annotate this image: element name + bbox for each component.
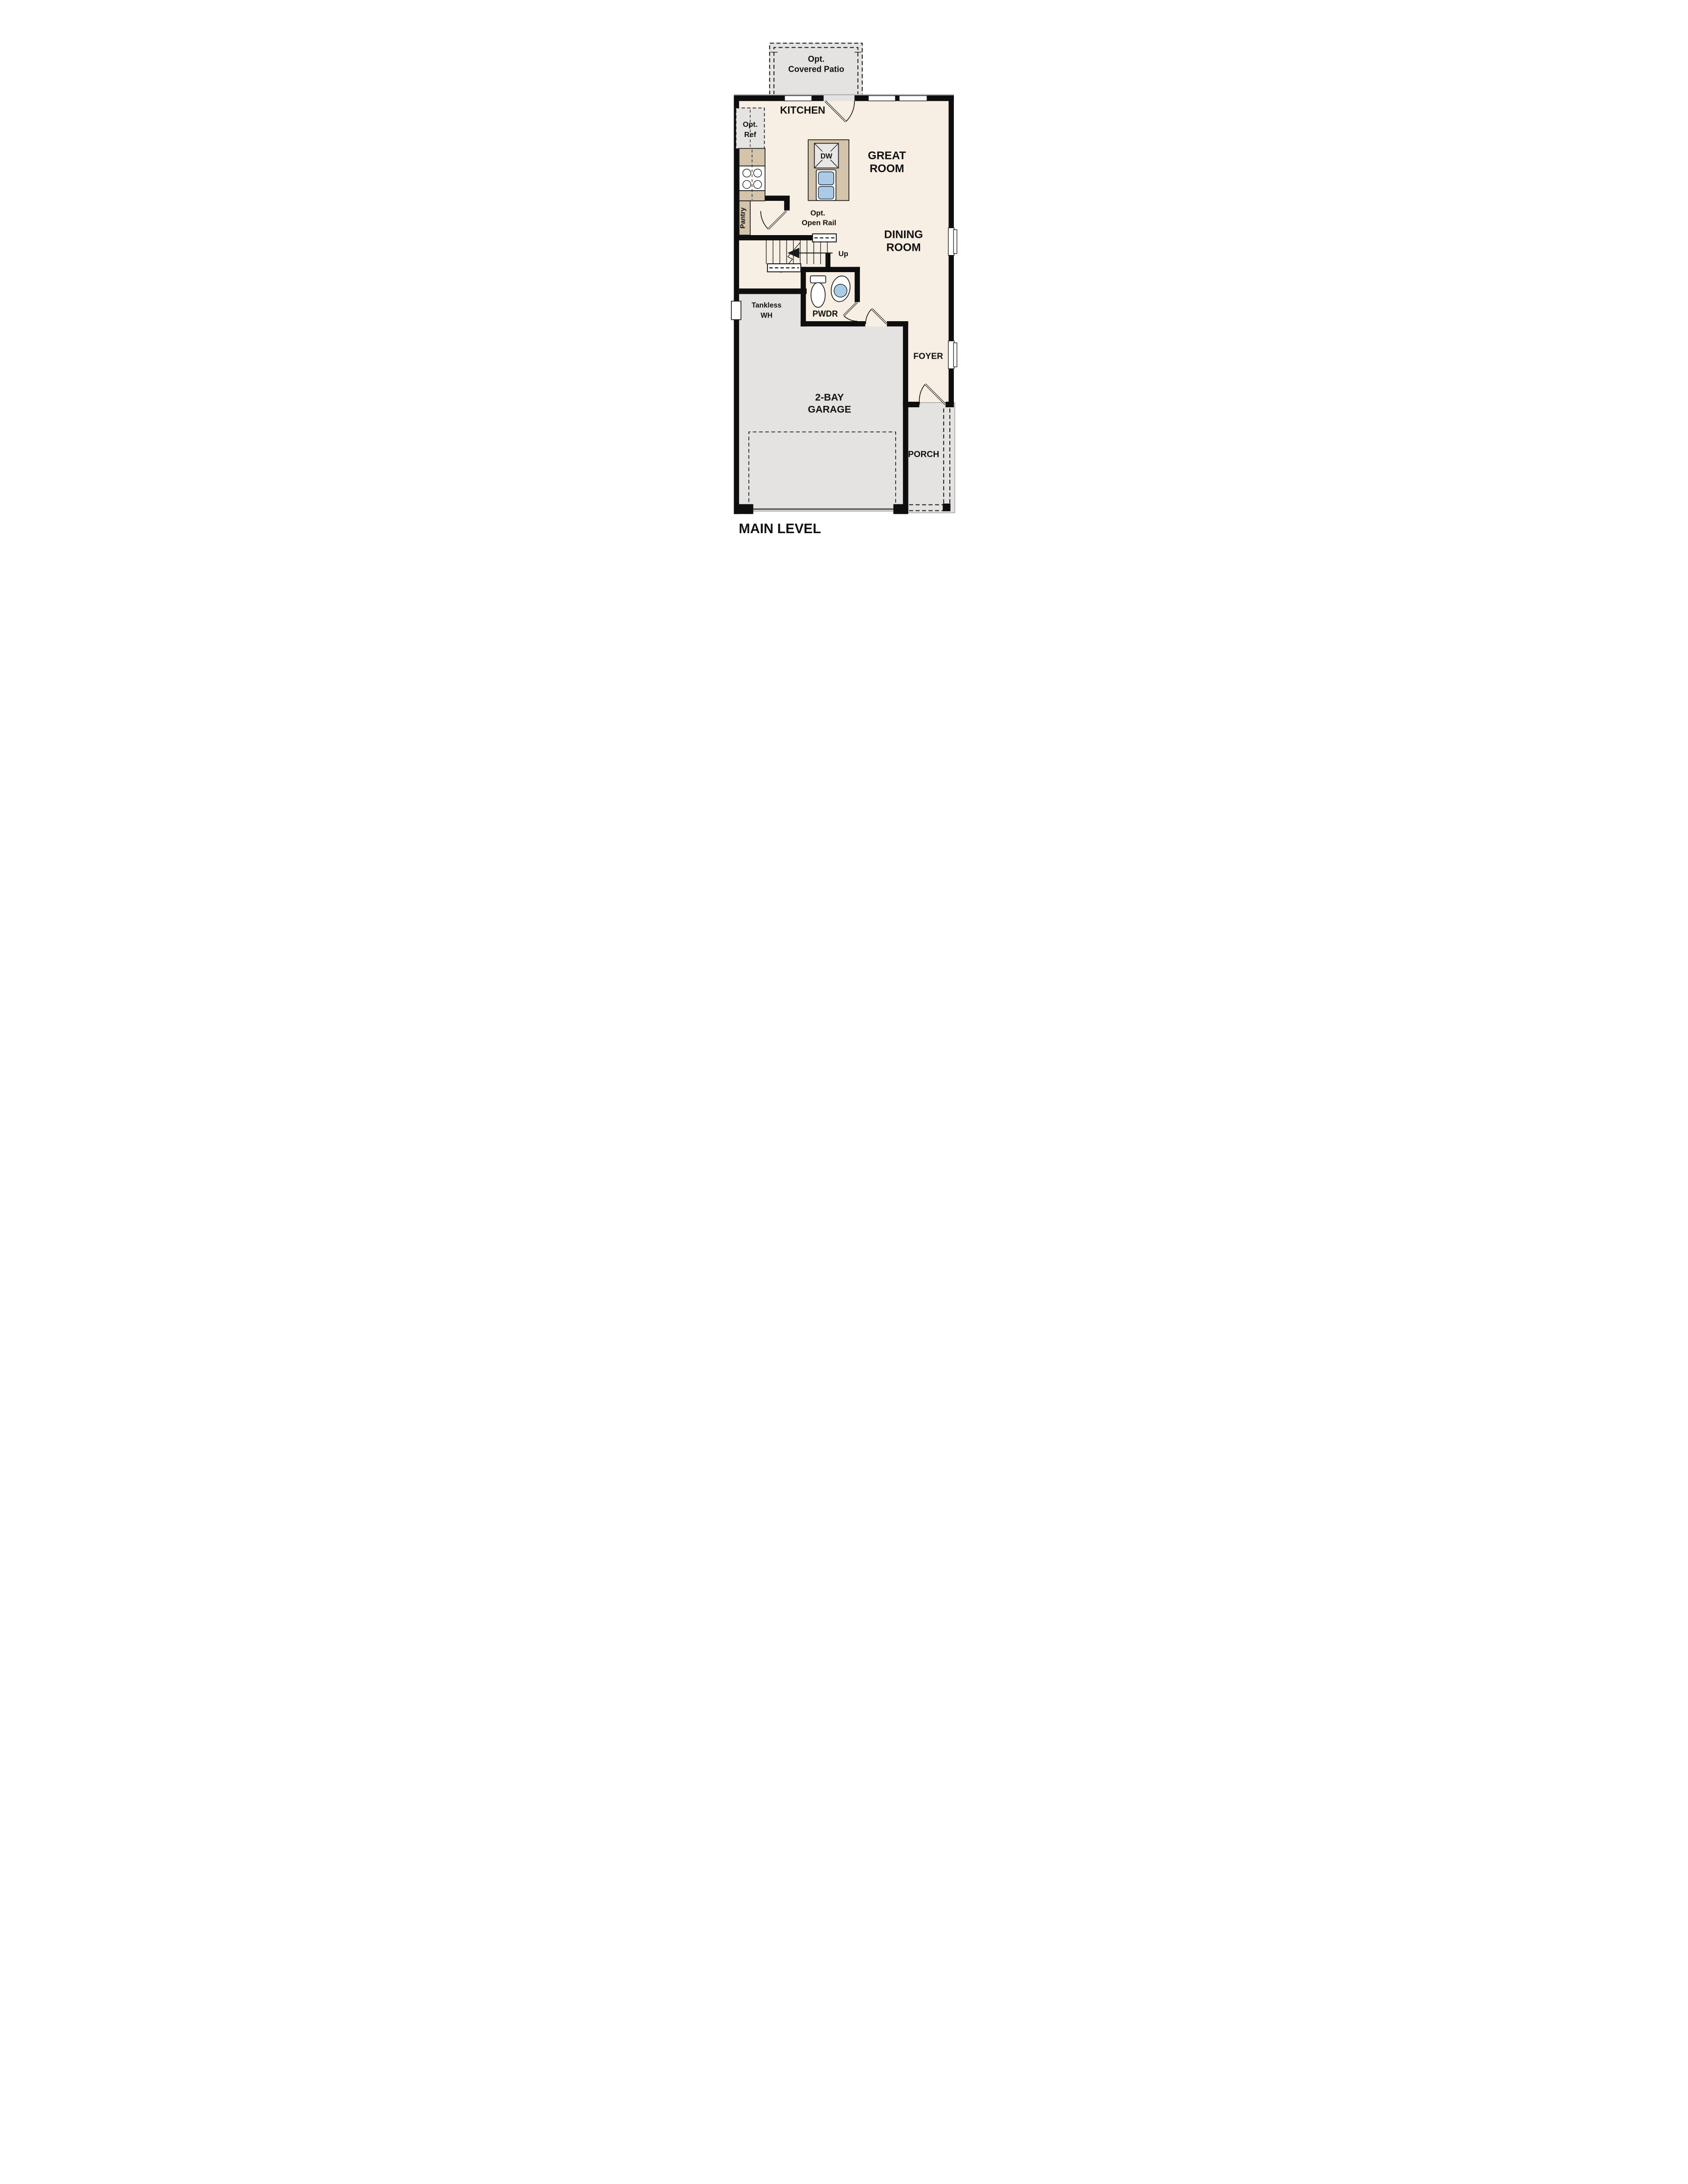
opt-ref-label-line2: Ref bbox=[744, 131, 756, 139]
stair-closet-stub bbox=[825, 253, 830, 268]
sink-basin-1 bbox=[818, 172, 834, 185]
kitchen-label: KITCHEN bbox=[780, 104, 825, 116]
kitchen-window bbox=[785, 96, 812, 101]
porch-post bbox=[942, 504, 950, 511]
top-wall-seg4 bbox=[895, 95, 899, 101]
great-room-label-line1: GREAT bbox=[868, 149, 906, 162]
porch-label: PORCH bbox=[908, 449, 939, 459]
foyer-window-sill bbox=[953, 343, 957, 367]
dining-room-label-line1: DINING bbox=[884, 229, 923, 241]
covered-patio: Opt. Covered Patio bbox=[769, 43, 863, 101]
front-wall-seg2 bbox=[945, 402, 953, 407]
patio-label-line1: Opt. bbox=[808, 54, 824, 63]
great-room-label-line2: ROOM bbox=[869, 162, 904, 175]
tankless-label-line2: WH bbox=[760, 312, 772, 320]
dining-window-sill bbox=[953, 230, 957, 253]
pwdr-label: PWDR bbox=[812, 309, 838, 318]
dining-room-label-line2: ROOM bbox=[886, 242, 921, 254]
garage-label-line2: GARAGE bbox=[808, 404, 851, 415]
garage-label-line1: 2-BAY bbox=[815, 392, 844, 403]
open-rail-label-line1: Opt. bbox=[810, 209, 825, 217]
garage-door-line bbox=[753, 509, 893, 510]
pwdr-right-wall bbox=[854, 267, 860, 302]
pwdr-left-wall bbox=[800, 267, 805, 327]
floor-plan-page: Opt. Covered Patio bbox=[563, 0, 1126, 728]
great-room-window-1 bbox=[868, 96, 895, 101]
tankless-label-line1: Tankless bbox=[751, 302, 781, 310]
pantry-label: Pantry bbox=[739, 207, 747, 228]
pantry-door-stub bbox=[784, 201, 790, 211]
patio-label-line2: Covered Patio bbox=[788, 64, 844, 74]
garage-door-line2 bbox=[753, 510, 893, 511]
dishwasher-label: DW bbox=[820, 153, 832, 161]
hall-bottom-wall-seg1 bbox=[800, 321, 865, 326]
right-wall-seg1 bbox=[948, 95, 953, 228]
island-sink bbox=[816, 170, 836, 201]
top-wall-shadow bbox=[734, 94, 953, 95]
floor-plan-drawing: Opt. Covered Patio bbox=[563, 0, 1126, 728]
opt-ref-label-line1: Opt. bbox=[742, 121, 757, 129]
toilet-bowl bbox=[811, 283, 825, 307]
dishwasher: DW bbox=[814, 143, 838, 168]
top-wall-seg1 bbox=[734, 95, 785, 101]
garage-top-wall bbox=[739, 288, 806, 294]
great-room-window-2 bbox=[899, 96, 927, 101]
plan-title: MAIN LEVEL bbox=[739, 521, 821, 536]
stair-top-wall bbox=[734, 235, 812, 240]
garage-right-wall bbox=[903, 321, 908, 514]
open-rail-label-line2: Open Rail bbox=[802, 219, 836, 227]
sink-basin-2 bbox=[818, 187, 834, 199]
tankless-wh-unit bbox=[731, 301, 741, 320]
top-wall-seg3 bbox=[854, 95, 868, 101]
right-wall-seg2 bbox=[948, 255, 953, 341]
toilet-tank bbox=[810, 276, 825, 283]
top-wall-seg2 bbox=[811, 95, 823, 101]
pwdr-top-wall bbox=[800, 267, 860, 272]
right-wall-seg3 bbox=[948, 369, 953, 407]
up-label: Up bbox=[838, 250, 848, 258]
foyer-label: FOYER bbox=[913, 351, 943, 361]
